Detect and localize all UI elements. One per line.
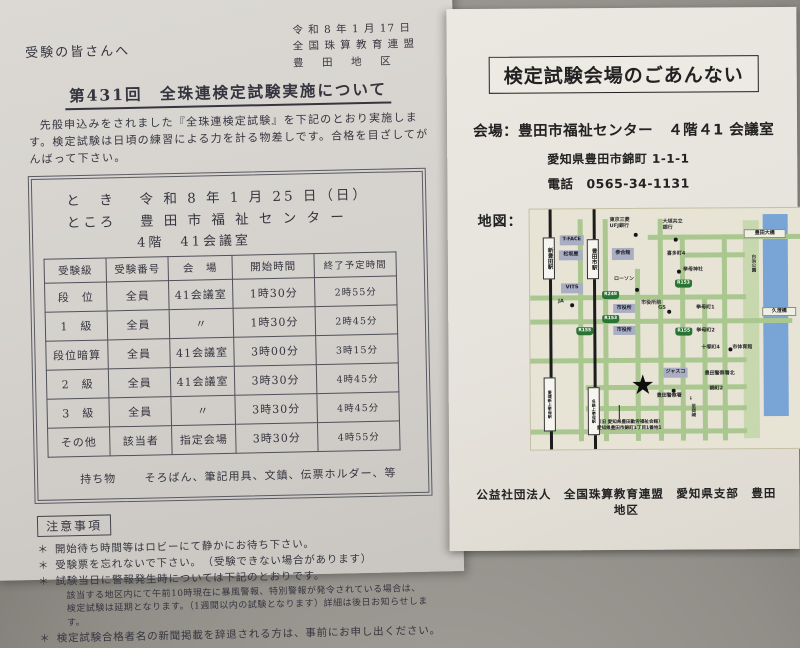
route-badge-153-a: R153 — [602, 315, 619, 323]
label-lawson: ローソン — [614, 277, 634, 283]
belongings-line: 持ち物 そろばん、筆記用具、文鎮、伝票ホルダー、等 — [80, 464, 422, 487]
exam-table-cell: 段 位 — [45, 282, 108, 312]
exam-table-cell: 41会議室 — [170, 366, 235, 396]
road-h2 — [680, 252, 745, 257]
road-v6 — [702, 294, 708, 440]
station-shin-toyota: 新豊田駅 — [543, 237, 555, 279]
district: 豊 田 地 区 — [293, 52, 416, 71]
exam-table-header-cell: 終了予定時間 — [314, 252, 396, 278]
exam-table-cell: 3 級 — [47, 398, 110, 428]
label-koromocho-1: 挙母町1 — [696, 305, 715, 311]
route-badge-155-b: R155 — [675, 328, 692, 336]
dot-gs — [667, 310, 671, 314]
exam-table-header-cell: 受験番号 — [106, 257, 168, 282]
label-police-station-north: 豊田警察署北 — [705, 371, 735, 377]
exam-schedule-table: 受験級受験番号会 場開始時間終了予定時間 段 位全員41会議室1時30分2時55… — [43, 251, 400, 457]
dot-lawson — [635, 288, 639, 292]
asterisk-bullet: ＊ — [39, 633, 51, 645]
building-t-face: T-FACE — [560, 235, 584, 245]
label-to-okazaki: 至岡崎 — [687, 404, 695, 428]
exam-table-cell: 〃 — [169, 308, 234, 338]
venue-line: 会場：豊田市福祉センター ４階４1 会議室 — [473, 118, 775, 141]
exam-table-cell: 全員 — [108, 368, 171, 398]
where-value: 豊 田 市 福 祉 セ ン タ ー — [140, 209, 347, 229]
intro-paragraph: 先般申込みをされました『全珠連検定試験』を下記のとおり実施します。検定試験は日頃… — [29, 108, 430, 168]
exam-table-cell: その他 — [48, 427, 111, 457]
route-badge-155-a: R155 — [576, 327, 593, 335]
dot-bank-ufj — [634, 233, 638, 237]
exam-table-cell: 4時45分 — [316, 363, 399, 394]
salutation: 受験の皆さんへ — [25, 40, 130, 61]
exam-table-cell: 4時45分 — [317, 392, 400, 423]
when-value: 令 和 8 年 1 月 25 日（日） — [139, 187, 369, 208]
exam-table-cell: 3時15分 — [316, 334, 399, 365]
road-v4 — [658, 219, 664, 441]
exam-table-cell: 1時30分 — [233, 307, 316, 338]
exam-table-cell: 全員 — [108, 339, 171, 369]
exam-table-cell: 指定会場 — [172, 424, 237, 454]
venue-star-marker: ★ — [631, 374, 655, 398]
exam-table-cell: 41会議室 — [168, 279, 233, 309]
label-gs: GS — [658, 306, 666, 312]
road-v3 — [635, 269, 641, 441]
exam-info-box: と き 令 和 8 年 1 月 25 日（日） ところ 豊 田 市 福 祉 セ … — [28, 168, 433, 504]
venue-address: 愛知県豊田市錦町 1-1-1 — [547, 149, 775, 167]
exam-table-row: その他該当者指定会場3時30分4時55分 — [48, 421, 401, 457]
label-ja: JA — [558, 299, 564, 305]
asterisk-bullet: ＊ — [37, 544, 49, 556]
exam-table-cell: 1時30分 — [232, 278, 315, 309]
building-sangokan: 参合館 — [612, 248, 634, 260]
label-nishikicho-2: 錦町2 — [710, 386, 724, 392]
venue-map: 新豊田駅豊田市駅愛環新上挙母駅名鉄上挙母駅豊田大橋久澄橋白浜公園T-FACE松坂… — [529, 207, 800, 451]
building-city-hall-1: 市役所 — [613, 304, 635, 313]
station-toyotashi: 豊田市駅 — [587, 239, 599, 279]
venue-label: 会場： — [473, 124, 518, 140]
tel-value: 0565-34-1131 — [586, 176, 689, 192]
label-shirahama-park: 白浜公園 — [745, 254, 755, 288]
station-aikan-shin-uwagoromo: 愛環新上挙母駅 — [544, 377, 556, 431]
footer-organization: 公益社団法人 全国珠算教育連盟 愛知県支部 豊田地区 — [475, 485, 777, 519]
label-totsukacho-4: 十塚町4 — [701, 345, 720, 351]
exam-table-cell: 全員 — [109, 397, 172, 427]
label-toyota-police-station: 豊田警察署 — [657, 394, 682, 400]
bridge-kyuzumi: 久澄橋 — [762, 307, 796, 316]
exam-table-cell: 3時00分 — [234, 336, 317, 367]
exam-table-cell: 〃 — [171, 395, 236, 425]
asterisk-bullet: ＊ — [38, 576, 50, 588]
exam-table-cell: 4時55分 — [317, 421, 400, 452]
notes-title: 注意事項 — [37, 514, 111, 537]
venue-value: 豊田市福祉センター ４階４1 会議室 — [518, 122, 774, 140]
venue-caption-address: 愛知県豊田市錦町1丁目1番地1 — [597, 426, 662, 432]
exam-notice-page: 受験の皆さんへ 令 和 8 年 1 月 17 日 全 国 珠 算 教 育 連 盟… — [0, 0, 464, 581]
label-city-hall-mae: 市役所前 — [641, 301, 661, 307]
road-v2 — [603, 219, 609, 441]
dot-police-station — [672, 389, 676, 393]
bridge-toyota-ohashi: 豊田大橋 — [744, 229, 786, 238]
route-badge-153-b: R153 — [675, 280, 692, 288]
exam-table-cell: 全員 — [107, 310, 170, 340]
exam-table-cell: 該当者 — [110, 426, 173, 456]
exam-table-cell: 段位暗算 — [46, 340, 109, 370]
exam-table-cell: 全員 — [106, 281, 169, 311]
notice-title: 第431回 全珠連検定試験実施について — [65, 77, 391, 110]
building-city-hall-2: 市役所 — [613, 326, 635, 335]
when-label: と き — [66, 192, 116, 209]
venue-telephone: 電話 0565-34-1131 — [547, 172, 775, 192]
label-kitamachi-4: 喜多町4 — [667, 252, 686, 258]
dot-koromo-shrine — [677, 270, 681, 274]
label-bank-ogaki-kyoritsu-line2: 銀行 — [663, 226, 673, 232]
label-city-gymnasium: 市体育館 — [732, 345, 752, 351]
exam-table-cell: 2 級 — [46, 369, 109, 399]
venue-guide-title: 検定試験会場のごあんない — [489, 55, 759, 94]
asterisk-bullet: ＊ — [38, 560, 50, 572]
exam-table-header-cell: 会 場 — [168, 255, 232, 280]
where-room: 4階 41会議室 — [137, 226, 417, 251]
belongings-value: そろばん、筆記用具、文鎮、伝票ホルダー、等 — [144, 466, 396, 484]
dot-bank-ogaki — [674, 238, 678, 242]
exam-table-cell: 2時55分 — [314, 276, 397, 307]
where-label: ところ — [67, 214, 117, 231]
road-v7 — [722, 234, 728, 440]
star-leader-line — [619, 405, 620, 419]
belongings-label: 持ち物 — [80, 472, 116, 486]
venue-guide-page: 検定試験会場のごあんない 会場：豊田市福祉センター ４階４1 会議室 愛知県豊田… — [446, 7, 799, 551]
dot-city-gym — [728, 347, 732, 351]
building-matsuzakaya: 松坂屋 — [559, 250, 583, 260]
building-jusco: ジャスコ — [664, 368, 688, 378]
exam-table-cell: 2時45分 — [315, 305, 398, 336]
exam-table-cell: 3時30分 — [235, 394, 318, 425]
exam-table-cell: 3時30分 — [236, 423, 319, 454]
arrow-south-icon: ↓ — [689, 397, 693, 403]
map-label: 地図： — [478, 211, 523, 231]
venue-caption-former-name: （旧 愛知県豊田勤労福祉会館） — [597, 420, 663, 426]
building-vits: VITS — [561, 283, 583, 293]
dot-ja — [570, 303, 574, 307]
exam-info-box-inner: と き 令 和 8 年 1 月 25 日（日） ところ 豊 田 市 福 祉 セ … — [31, 171, 430, 501]
exam-table-header-cell: 開始時間 — [232, 254, 314, 280]
exam-table-header-cell: 受験級 — [44, 258, 106, 283]
date-org-block: 令 和 8 年 1 月 17 日 全 国 珠 算 教 育 連 盟 豊 田 地 区 — [292, 20, 415, 71]
tel-label: 電話 — [547, 176, 573, 191]
label-koromo-shrine: 挙母神社 — [683, 268, 703, 274]
map-row: 地図： 新豊田駅豊田市駅愛環新上挙母駅名鉄上挙母駅豊田大橋久澄橋白浜公園T-FA… — [474, 207, 777, 451]
issuing-org: 全 国 珠 算 教 育 連 盟 — [293, 36, 416, 55]
exam-table-cell: 41会議室 — [170, 337, 235, 367]
exam-table-cell: 1 級 — [45, 311, 108, 341]
label-bank-tokyo-mitsubishi-line2: UFJ銀行 — [610, 224, 629, 230]
exam-table-cell: 3時30分 — [234, 365, 317, 396]
label-koromocho-2: 挙母町2 — [696, 328, 715, 334]
route-badge-248: R248 — [602, 291, 619, 299]
notice-header: 受験の皆さんへ 令 和 8 年 1 月 17 日 全 国 珠 算 教 育 連 盟… — [25, 20, 430, 77]
road-v5 — [680, 235, 686, 441]
